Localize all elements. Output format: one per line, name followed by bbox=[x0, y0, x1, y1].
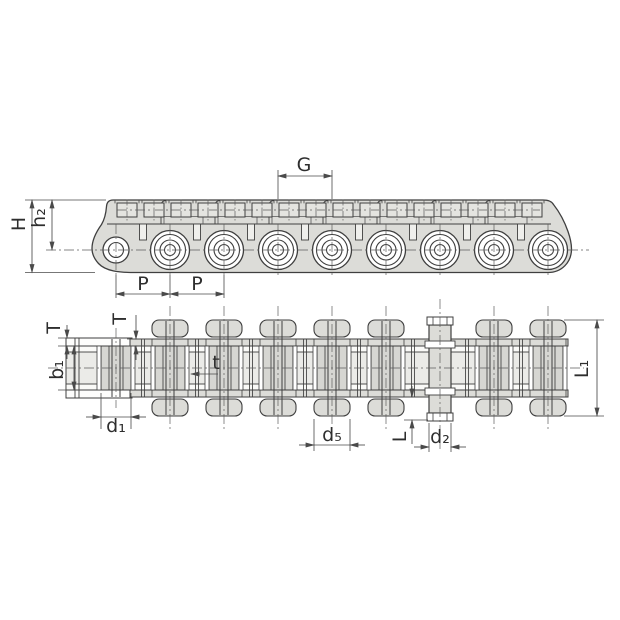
dim-label-h2: h₂ bbox=[28, 208, 50, 228]
plate-slot bbox=[248, 224, 255, 240]
dim-label-L: L bbox=[389, 431, 411, 442]
dim-label-G: G bbox=[297, 154, 312, 176]
dim-label-P-2: P bbox=[191, 273, 202, 295]
dim-label-d1: d₁ bbox=[106, 415, 126, 437]
plate-slot bbox=[140, 224, 147, 240]
dim-label-T-1: T bbox=[43, 322, 65, 335]
dim-label-d5: d₅ bbox=[322, 424, 342, 446]
plate-slot bbox=[518, 224, 525, 240]
dim-label-t: t bbox=[212, 352, 219, 374]
plate-slot bbox=[410, 224, 417, 240]
dim-label-H: H bbox=[8, 217, 30, 231]
plate-slot bbox=[356, 224, 363, 240]
plate-slot bbox=[194, 224, 201, 240]
outer-plate-left-top bbox=[66, 338, 132, 346]
dim-label-T-2: T bbox=[109, 313, 131, 326]
side-view-elevation bbox=[46, 200, 589, 278]
dim-label-L1: L₁ bbox=[571, 360, 593, 378]
outer-plate-left-bottom bbox=[66, 390, 132, 398]
plate-slot bbox=[464, 224, 471, 240]
dim-label-b1: b₁ bbox=[46, 360, 68, 380]
drawing-canvas: H h₂ G P P T T b₁ t d₁ d₅ L d₂ L₁ bbox=[0, 0, 620, 620]
dim-label-P-1: P bbox=[137, 273, 148, 295]
dim-label-d2: d₂ bbox=[430, 426, 450, 448]
roller-chain-technical-drawing: H h₂ G P P T T b₁ t d₁ d₅ L d₂ L₁ bbox=[0, 0, 620, 620]
plate-slot bbox=[302, 224, 309, 240]
